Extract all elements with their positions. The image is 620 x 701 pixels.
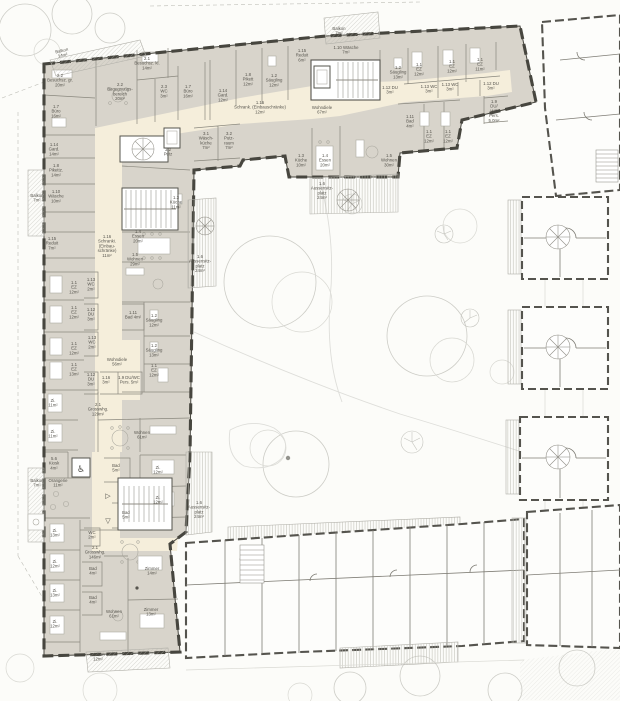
right-square-2 bbox=[508, 307, 608, 389]
label-bad-4-a: 1.11Bad4m² bbox=[406, 114, 415, 128]
label-duwc-5: 1.9 DU/WCPers. 5m² bbox=[118, 375, 140, 385]
triangle-down-icon: ▽ bbox=[105, 518, 111, 525]
terrace-bottom bbox=[186, 452, 212, 535]
triangle-right-icon: ▷ bbox=[105, 493, 111, 500]
label-bad-4-c1: Bad4m² bbox=[89, 566, 97, 576]
floor-plan-canvas: Balkon14m²2.2Besuchsz. gr.20m²1.7Büro16m… bbox=[0, 0, 620, 701]
label-wc-2-a: 1.13WC2m² bbox=[87, 277, 96, 291]
terrace-tree bbox=[337, 189, 359, 211]
label-bad-5-2: Bad5m² bbox=[122, 510, 130, 520]
right-square-1 bbox=[508, 197, 608, 279]
label-s116-3: 1.163m² bbox=[102, 375, 111, 385]
wheelchair-icon: ♿ bbox=[77, 464, 85, 474]
terrace-left bbox=[188, 198, 216, 288]
stair-core-top bbox=[311, 60, 380, 100]
bench-square bbox=[28, 514, 44, 530]
building-top-right bbox=[542, 15, 620, 196]
building-right-row bbox=[506, 197, 608, 516]
courtyard-paths bbox=[194, 182, 522, 468]
balcony-west-upper bbox=[28, 170, 44, 236]
terrace-tree bbox=[196, 217, 214, 235]
courtyard-marker-dot bbox=[286, 456, 290, 460]
label-bad-4-c2: Bad4m² bbox=[89, 595, 97, 605]
right-square-3 bbox=[506, 417, 608, 500]
label-bad-5-1: Bad5m² bbox=[112, 463, 120, 473]
label-gard-14: 1.14Gard.14m² bbox=[49, 142, 60, 156]
label-wc-2-c: WC2m² bbox=[88, 530, 96, 540]
label-wc-2-b: 1.13WC2m² bbox=[88, 335, 97, 349]
building-bottom-right bbox=[512, 505, 620, 700]
label-gard-12: 1.14Gard.12m² bbox=[218, 88, 229, 102]
elevator-icon bbox=[314, 66, 330, 88]
deciduous-trees bbox=[342, 194, 479, 453]
floor-plan-page: Balkon14m²2.2Besuchsz. gr.20m²1.7Büro16m… bbox=[0, 0, 620, 701]
building-bottom-strip bbox=[186, 517, 524, 670]
